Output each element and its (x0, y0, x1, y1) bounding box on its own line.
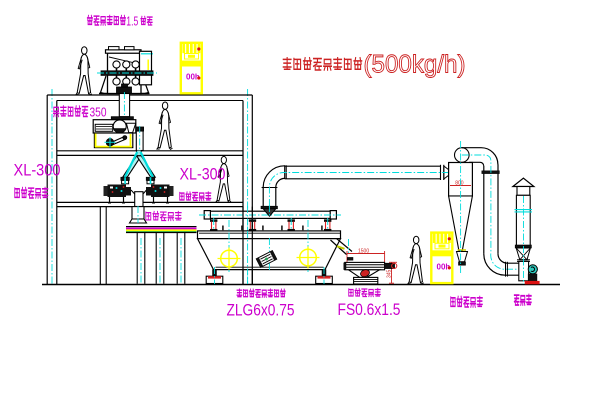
svg-text:350: 350 (90, 106, 107, 120)
svg-text:(500kg/h): (500kg/h) (364, 51, 466, 79)
svg-text:1.5: 1.5 (126, 15, 138, 29)
svg-text:345: 345 (387, 269, 393, 278)
svg-text:ZLG6x0.75: ZLG6x0.75 (227, 301, 295, 320)
svg-text:1500: 1500 (358, 249, 369, 255)
svg-text:XL-300: XL-300 (14, 162, 61, 180)
svg-text:XL-300: XL-300 (180, 166, 226, 184)
svg-text:FS0.6x1.5: FS0.6x1.5 (338, 300, 401, 319)
svg-text:800: 800 (455, 181, 464, 187)
